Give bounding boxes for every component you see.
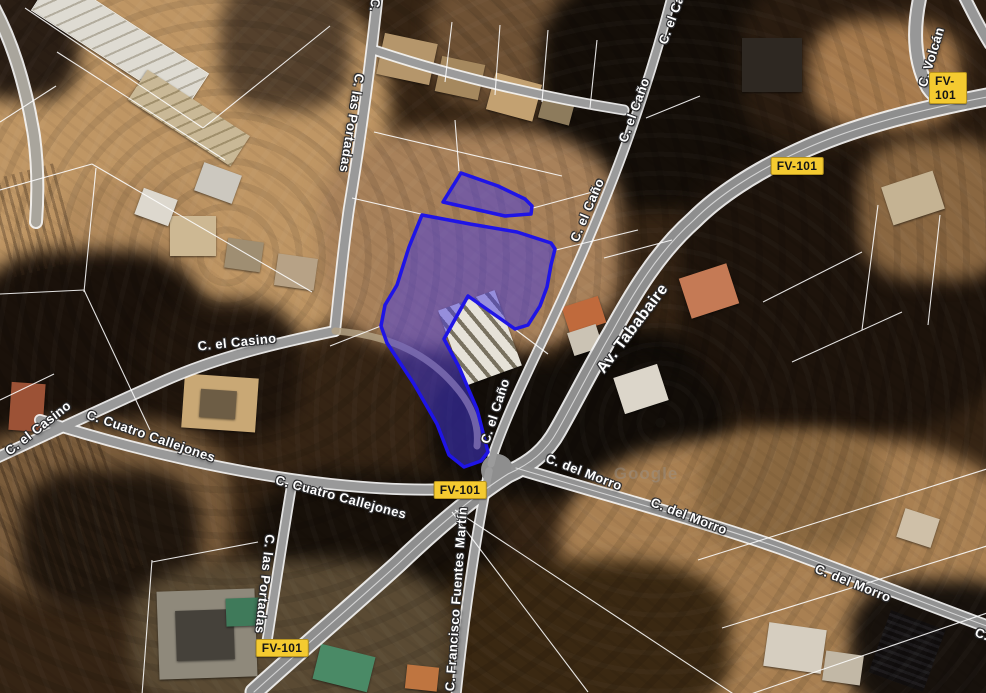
parcel-boundary-line: [25, 8, 203, 128]
parcel-boundary-line: [792, 312, 902, 362]
parcel-boundary-line: [455, 510, 735, 693]
parcel-boundary-line: [455, 120, 459, 171]
parcel-boundary-line: [0, 374, 54, 400]
route-badge-fv101: FV-101: [256, 639, 309, 657]
road-callejones-casing: [40, 420, 487, 490]
road-surfaces: [0, 0, 986, 693]
parcel-lines: [0, 8, 986, 693]
road-casings: [0, 0, 986, 693]
route-badge-fv101: FV-101: [929, 72, 967, 104]
parcel-boundary-line: [748, 612, 986, 693]
selected-parcel-polygon[interactable]: [381, 215, 555, 467]
parcel-boundary-line: [57, 52, 225, 160]
selected-parcel-polygon-upper[interactable]: [443, 173, 532, 216]
road-casino-casing: [0, 331, 335, 460]
map-vector-layer: [0, 0, 986, 693]
parcel-boundary-line: [0, 164, 92, 190]
parcel-boundary-line: [533, 190, 600, 208]
road-casino: [0, 331, 335, 460]
route-badge-fv101: FV-101: [771, 157, 824, 175]
parcel-boundary-line: [92, 164, 312, 292]
parcel-boundary-line: [152, 542, 258, 562]
road-ramp: [962, 0, 986, 44]
parcel-boundary-line: [374, 132, 562, 176]
parcel-boundary-line: [646, 96, 700, 118]
parcel-boundary-line: [698, 468, 986, 560]
route-badge-fv101: FV-101: [434, 481, 487, 499]
road-portadas-low: [266, 483, 292, 648]
parcel-boundary-line: [142, 560, 152, 693]
parcel-boundary-line: [84, 168, 96, 292]
selected-parcel[interactable]: [381, 173, 555, 467]
parcel-boundary-line: [352, 198, 421, 214]
satellite-map-canvas[interactable]: C. las Portadas C. C. el Caño C. el Caño…: [0, 0, 986, 693]
parcel-boundary-line: [928, 215, 940, 325]
parcel-boundary-line: [0, 290, 84, 294]
parcel-boundary-line: [763, 252, 862, 302]
parcel-boundary-line: [590, 40, 597, 108]
road-portadas: [335, 0, 378, 331]
parcel-boundary-line: [862, 205, 878, 330]
road-fv101: [254, 96, 986, 692]
parcel-boundary-line: [203, 26, 330, 128]
parcel-boundary-line: [556, 230, 638, 250]
